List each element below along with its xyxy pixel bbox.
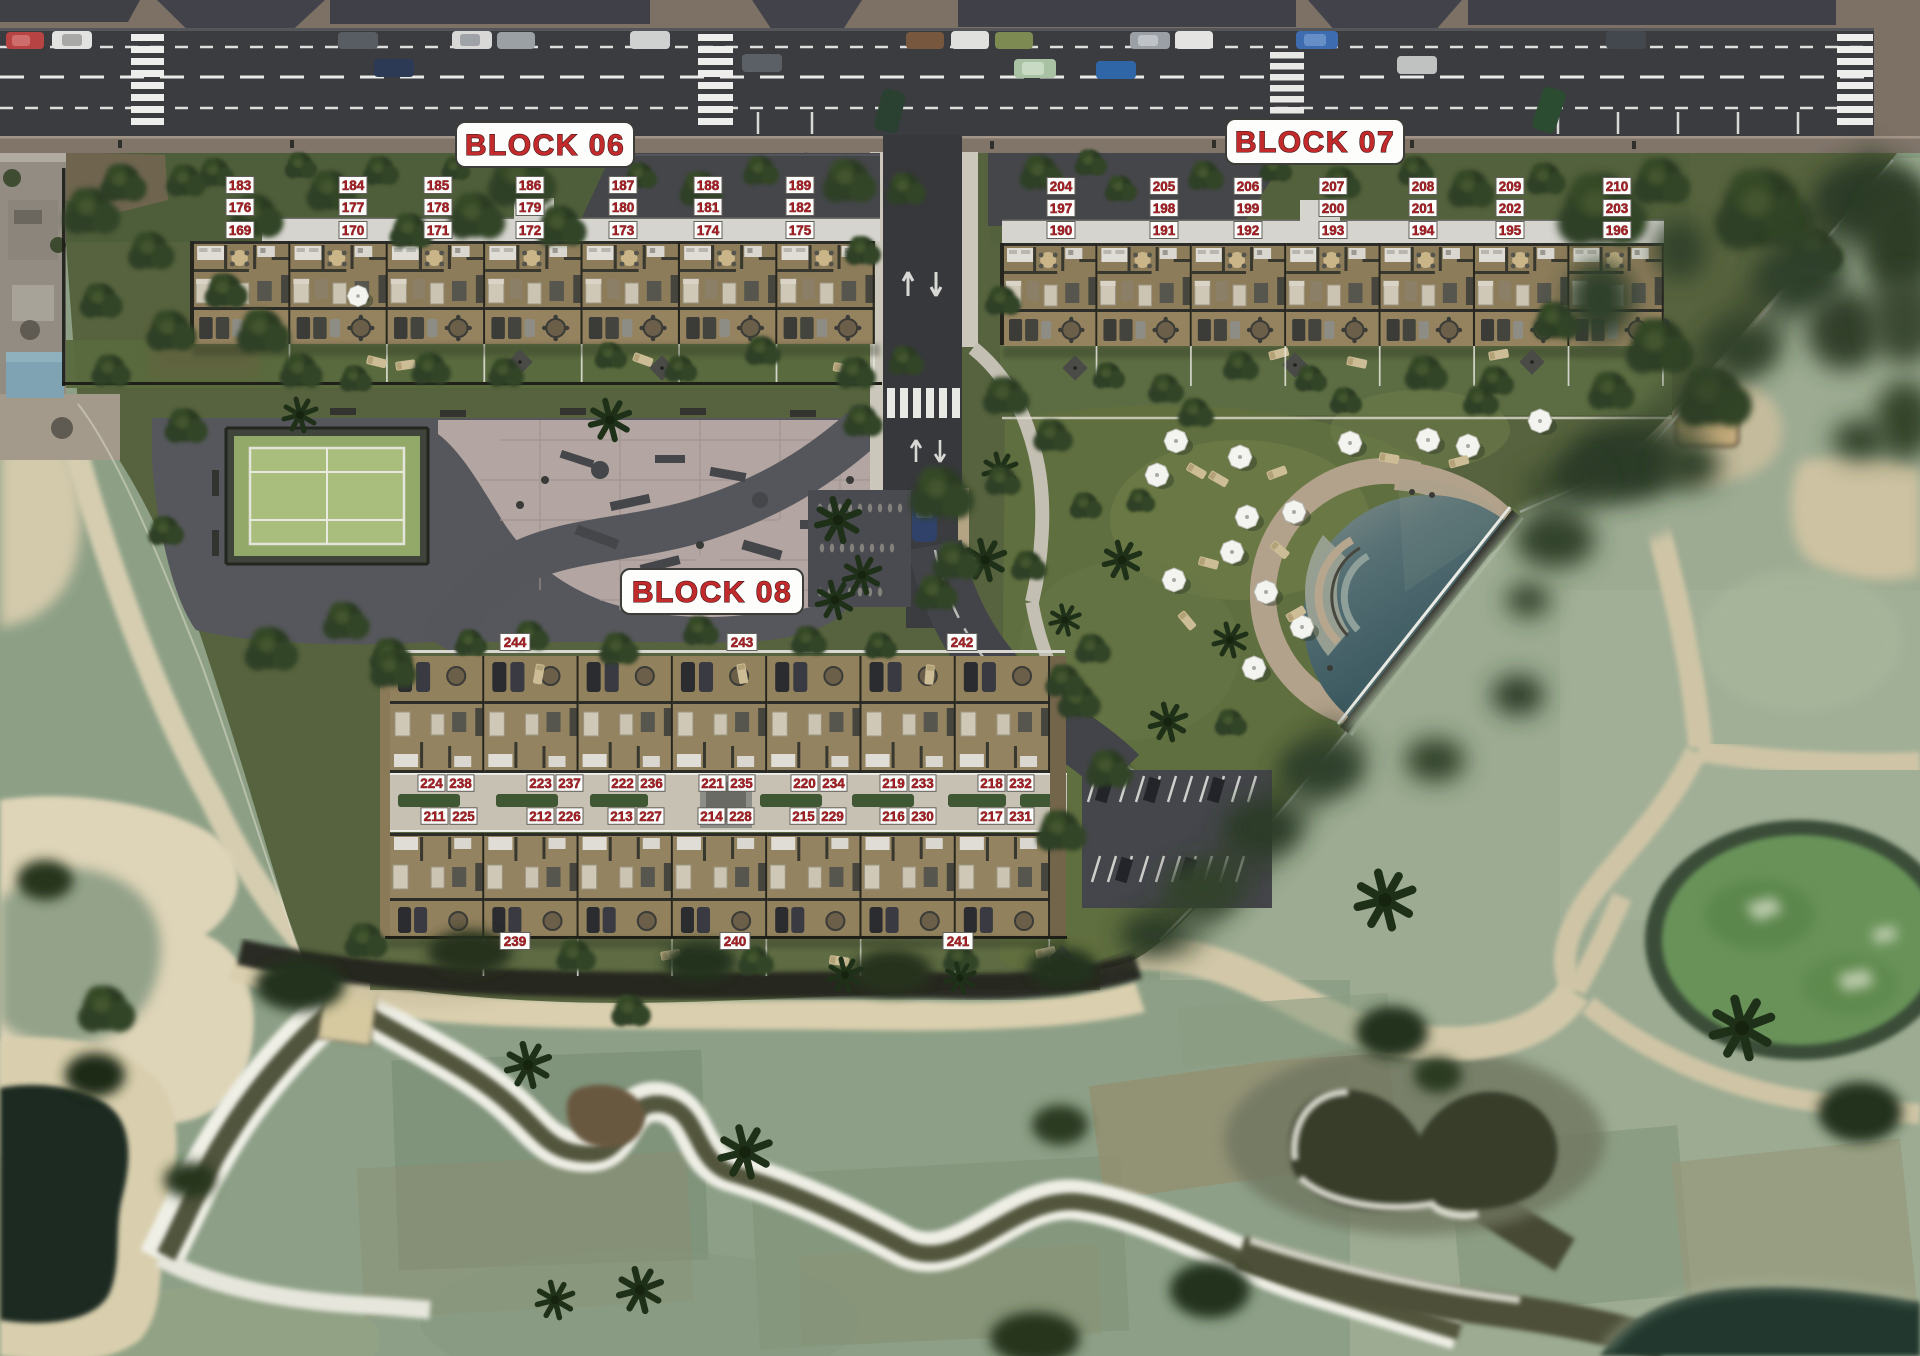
svg-text:202: 202 bbox=[1499, 201, 1522, 216]
svg-text:224: 224 bbox=[420, 776, 443, 791]
svg-text:171: 171 bbox=[427, 223, 450, 238]
svg-text:186: 186 bbox=[519, 178, 542, 193]
svg-text:229: 229 bbox=[821, 809, 844, 824]
svg-text:237: 237 bbox=[558, 776, 581, 791]
svg-text:238: 238 bbox=[449, 776, 472, 791]
svg-text:232: 232 bbox=[1009, 776, 1032, 791]
svg-text:192: 192 bbox=[1237, 223, 1260, 238]
svg-text:193: 193 bbox=[1322, 223, 1345, 238]
svg-text:178: 178 bbox=[427, 200, 450, 215]
svg-text:221: 221 bbox=[701, 776, 724, 791]
svg-text:235: 235 bbox=[730, 776, 753, 791]
svg-text:195: 195 bbox=[1499, 223, 1522, 238]
svg-text:242: 242 bbox=[951, 635, 974, 650]
svg-text:172: 172 bbox=[519, 223, 542, 238]
svg-text:184: 184 bbox=[342, 178, 365, 193]
svg-text:219: 219 bbox=[882, 776, 905, 791]
svg-text:197: 197 bbox=[1050, 201, 1073, 216]
svg-text:228: 228 bbox=[729, 809, 752, 824]
svg-text:217: 217 bbox=[980, 809, 1003, 824]
svg-text:239: 239 bbox=[504, 934, 527, 949]
svg-text:243: 243 bbox=[731, 635, 754, 650]
svg-text:190: 190 bbox=[1050, 223, 1073, 238]
svg-text:194: 194 bbox=[1412, 223, 1435, 238]
svg-text:BLOCK 08: BLOCK 08 bbox=[632, 576, 792, 609]
svg-text:177: 177 bbox=[342, 200, 365, 215]
svg-text:231: 231 bbox=[1009, 809, 1032, 824]
svg-text:174: 174 bbox=[697, 223, 720, 238]
svg-text:183: 183 bbox=[229, 178, 252, 193]
svg-text:189: 189 bbox=[789, 178, 812, 193]
svg-text:198: 198 bbox=[1153, 201, 1176, 216]
svg-text:241: 241 bbox=[947, 934, 970, 949]
svg-text:222: 222 bbox=[611, 776, 634, 791]
svg-text:208: 208 bbox=[1412, 179, 1435, 194]
svg-text:220: 220 bbox=[793, 776, 816, 791]
svg-text:205: 205 bbox=[1153, 179, 1176, 194]
svg-text:182: 182 bbox=[789, 200, 812, 215]
svg-text:206: 206 bbox=[1237, 179, 1260, 194]
svg-text:234: 234 bbox=[822, 776, 845, 791]
svg-text:199: 199 bbox=[1237, 201, 1260, 216]
svg-text:173: 173 bbox=[612, 223, 635, 238]
svg-text:201: 201 bbox=[1412, 201, 1435, 216]
svg-text:213: 213 bbox=[610, 809, 633, 824]
svg-text:196: 196 bbox=[1606, 223, 1629, 238]
svg-text:215: 215 bbox=[792, 809, 815, 824]
svg-text:176: 176 bbox=[229, 200, 252, 215]
svg-text:188: 188 bbox=[697, 178, 720, 193]
svg-text:203: 203 bbox=[1606, 201, 1629, 216]
svg-text:210: 210 bbox=[1606, 179, 1629, 194]
svg-text:211: 211 bbox=[424, 809, 446, 824]
svg-text:226: 226 bbox=[558, 809, 581, 824]
svg-text:227: 227 bbox=[639, 809, 662, 824]
svg-text:244: 244 bbox=[504, 635, 527, 650]
svg-text:207: 207 bbox=[1322, 179, 1345, 194]
svg-text:216: 216 bbox=[882, 809, 905, 824]
svg-text:169: 169 bbox=[229, 223, 252, 238]
svg-text:233: 233 bbox=[911, 776, 934, 791]
svg-text:236: 236 bbox=[640, 776, 663, 791]
svg-text:170: 170 bbox=[342, 223, 365, 238]
svg-text:204: 204 bbox=[1050, 179, 1073, 194]
svg-text:200: 200 bbox=[1322, 201, 1345, 216]
svg-text:191: 191 bbox=[1153, 223, 1176, 238]
svg-text:BLOCK 07: BLOCK 07 bbox=[1235, 126, 1395, 159]
svg-text:181: 181 bbox=[697, 200, 720, 215]
svg-text:175: 175 bbox=[789, 223, 812, 238]
svg-text:240: 240 bbox=[724, 934, 747, 949]
svg-text:185: 185 bbox=[427, 178, 450, 193]
svg-text:187: 187 bbox=[612, 178, 635, 193]
svg-text:179: 179 bbox=[519, 200, 542, 215]
svg-text:223: 223 bbox=[529, 776, 552, 791]
svg-text:214: 214 bbox=[700, 809, 723, 824]
svg-text:218: 218 bbox=[980, 776, 1003, 791]
svg-text:225: 225 bbox=[452, 809, 475, 824]
svg-text:180: 180 bbox=[612, 200, 635, 215]
svg-text:209: 209 bbox=[1499, 179, 1522, 194]
svg-text:230: 230 bbox=[911, 809, 934, 824]
svg-text:212: 212 bbox=[529, 809, 552, 824]
svg-text:BLOCK 06: BLOCK 06 bbox=[465, 129, 625, 162]
